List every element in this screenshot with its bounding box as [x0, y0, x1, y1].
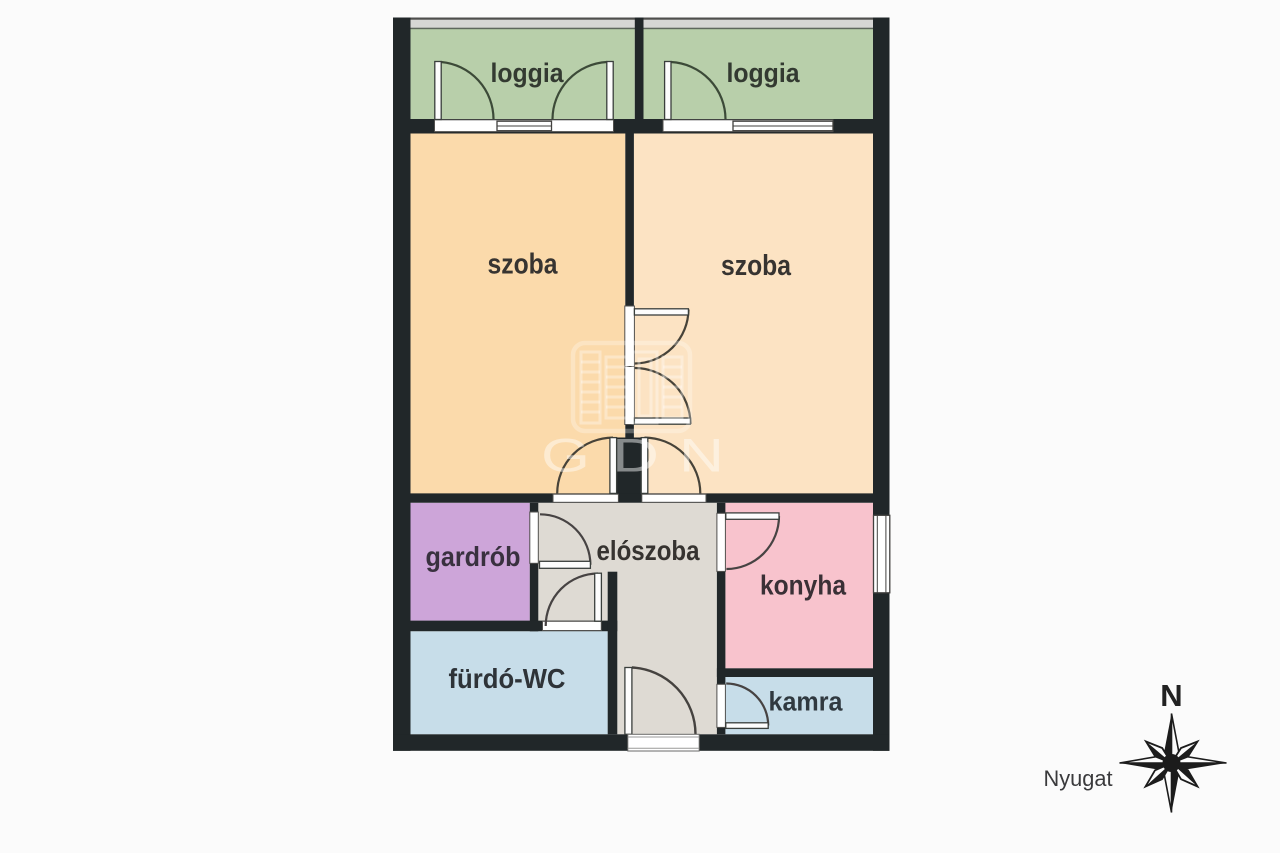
svg-text:elószoba: elószoba	[597, 535, 700, 566]
svg-text:loggia: loggia	[727, 58, 801, 88]
svg-text:szoba: szoba	[488, 249, 559, 281]
svg-text:N: N	[679, 429, 724, 482]
svg-text:Nyugat: Nyugat	[1044, 766, 1113, 791]
svg-text:kamra: kamra	[769, 687, 844, 717]
svg-text:G: G	[541, 429, 590, 482]
svg-text:gardrób: gardrób	[426, 541, 521, 572]
svg-text:D: D	[612, 429, 659, 482]
svg-text:loggia: loggia	[491, 58, 565, 88]
svg-text:N: N	[1160, 678, 1182, 713]
svg-text:szoba: szoba	[721, 250, 792, 282]
svg-text:fürdó-WC: fürdó-WC	[449, 663, 566, 694]
svg-text:konyha: konyha	[760, 570, 846, 601]
